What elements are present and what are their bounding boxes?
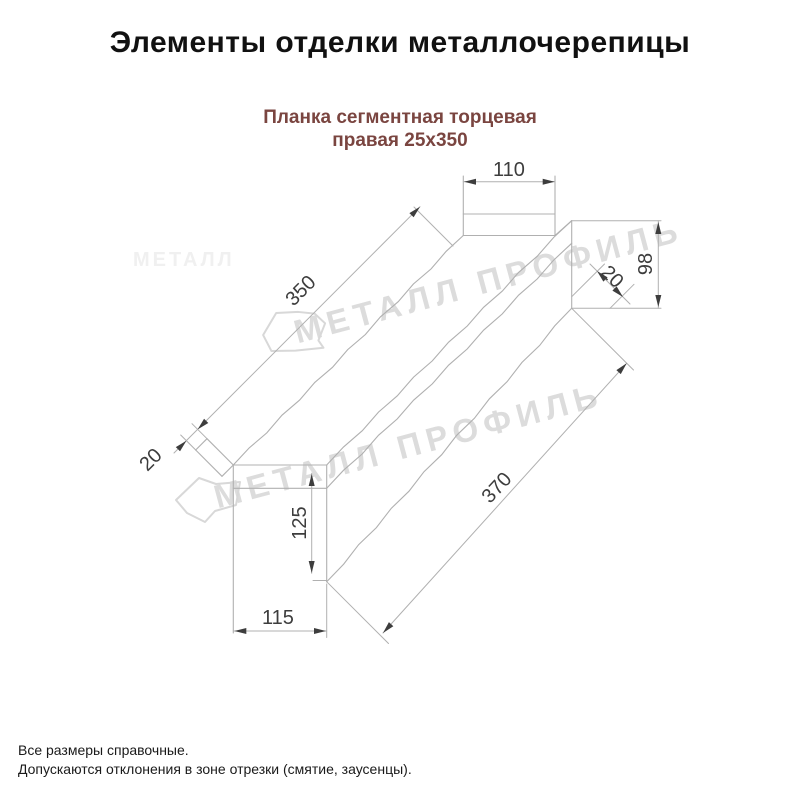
footnote-line1: Все размеры справочные. [18,741,412,760]
dimension-lines [174,182,661,644]
dim-label-350: 350 [281,271,320,310]
logo-watermark-lower [176,478,240,522]
dimension-labels: 110 98 20 350 20 125 115 370 [135,159,657,629]
part-outline [196,176,572,633]
footnote-line2: Допускаются отклонения в зоне отрезки (с… [18,760,412,779]
product-subtitle-line1: Планка сегментная торцевая [0,106,800,129]
dim-label-20-end: 20 [596,261,627,292]
dim-label-125: 125 [289,506,311,539]
dim-label-110: 110 [493,159,525,181]
dim-label-20-tip: 20 [135,444,166,475]
dimension-arrows [176,179,662,635]
footnotes: Все размеры справочные. Допускаются откл… [18,741,412,779]
logo-watermark-upper [260,306,328,355]
catalog-page: МЕТАЛЛ МЕТАЛЛ ПРОФИЛЬ МЕТАЛЛ ПРОФИЛЬ 110… [0,0,800,800]
dim-label-98: 98 [635,253,657,275]
page-title: Элементы отделки металлочерепицы [0,26,800,60]
product-subtitle: Планка сегментная торцевая правая 25х350 [0,106,800,152]
dim-label-115: 115 [262,607,294,629]
dim-label-370: 370 [478,468,517,507]
product-subtitle-line2: правая 25х350 [0,129,800,152]
